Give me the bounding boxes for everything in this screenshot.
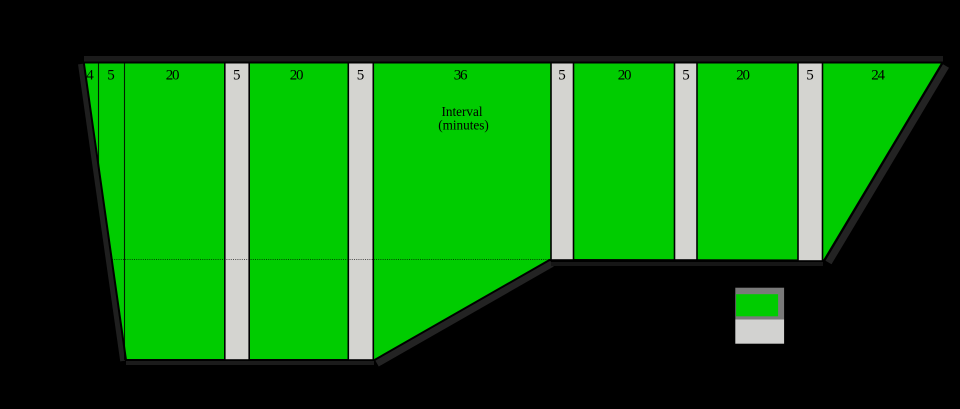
svg-text:Break: Break — [792, 323, 829, 340]
svg-text:4: 4 — [86, 68, 94, 84]
svg-text:5: 5 — [806, 68, 814, 84]
svg-text:20: 20 — [618, 68, 631, 84]
svg-text:5: 5 — [233, 68, 241, 84]
svg-text:Playing time: Playing time — [792, 295, 871, 312]
svg-text:5: 5 — [357, 68, 365, 84]
svg-text:5: 5 — [558, 68, 566, 84]
svg-text:20: 20 — [166, 68, 179, 84]
svg-text:20: 20 — [736, 68, 749, 84]
svg-text:36: 36 — [454, 68, 468, 84]
svg-text:24: 24 — [871, 68, 885, 84]
svg-text:20: 20 — [290, 68, 303, 84]
svg-text:5: 5 — [107, 68, 115, 84]
svg-text:5: 5 — [682, 68, 690, 84]
svg-text:(minutes): (minutes) — [438, 118, 489, 133]
